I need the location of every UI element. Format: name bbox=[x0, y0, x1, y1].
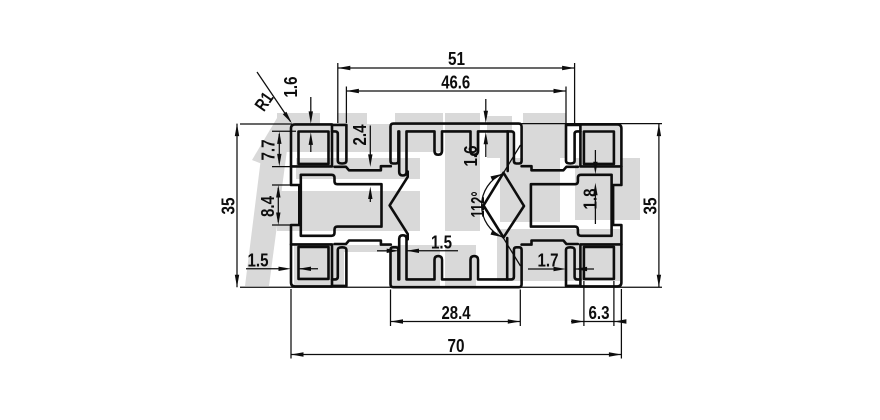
svg-text:6.3: 6.3 bbox=[589, 303, 610, 323]
svg-text:1.7: 1.7 bbox=[538, 251, 559, 271]
svg-text:112°: 112° bbox=[468, 192, 488, 218]
svg-text:1.8: 1.8 bbox=[581, 189, 601, 210]
svg-text:1.5: 1.5 bbox=[431, 232, 452, 252]
svg-text:1.6: 1.6 bbox=[461, 146, 481, 167]
svg-text:28.4: 28.4 bbox=[442, 303, 471, 323]
svg-text:8.4: 8.4 bbox=[258, 196, 278, 217]
svg-text:46.6: 46.6 bbox=[441, 73, 470, 93]
svg-text:7.7: 7.7 bbox=[259, 140, 279, 161]
svg-text:2.4: 2.4 bbox=[350, 125, 370, 146]
svg-text:35: 35 bbox=[219, 198, 239, 215]
svg-text:1.6: 1.6 bbox=[281, 77, 301, 98]
svg-text:1.5: 1.5 bbox=[248, 250, 269, 270]
svg-text:70: 70 bbox=[448, 336, 465, 356]
svg-text:51: 51 bbox=[448, 49, 465, 69]
svg-text:35: 35 bbox=[641, 198, 661, 215]
